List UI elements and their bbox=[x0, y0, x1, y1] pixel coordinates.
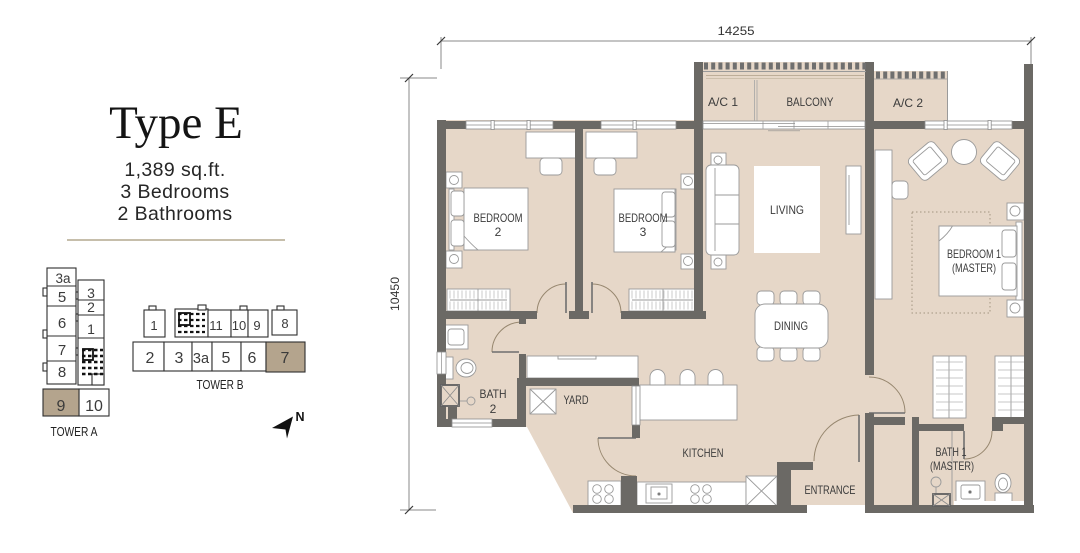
svg-text:ENTRANCE: ENTRANCE bbox=[805, 483, 856, 497]
svg-text:BEDROOM: BEDROOM bbox=[619, 211, 668, 225]
svg-text:TOWER A: TOWER A bbox=[51, 424, 98, 439]
svg-text:N: N bbox=[295, 410, 304, 424]
svg-text:6: 6 bbox=[58, 315, 66, 332]
svg-text:A/C 2: A/C 2 bbox=[893, 96, 923, 110]
svg-text:3: 3 bbox=[175, 350, 184, 367]
svg-text:KITCHEN: KITCHEN bbox=[683, 446, 724, 460]
svg-text:2: 2 bbox=[495, 225, 502, 239]
svg-text:(MASTER): (MASTER) bbox=[952, 261, 996, 275]
svg-text:8: 8 bbox=[281, 316, 288, 331]
svg-text:14255: 14255 bbox=[718, 24, 755, 38]
svg-text:7: 7 bbox=[281, 350, 290, 367]
svg-text:BATH: BATH bbox=[480, 387, 507, 401]
svg-text:10: 10 bbox=[232, 318, 246, 333]
svg-text:DINING: DINING bbox=[774, 319, 808, 333]
svg-text:2: 2 bbox=[87, 299, 95, 315]
svg-text:3a: 3a bbox=[193, 351, 210, 367]
svg-text:6: 6 bbox=[248, 350, 257, 367]
svg-text:BALCONY: BALCONY bbox=[787, 95, 834, 109]
svg-text:3: 3 bbox=[640, 225, 647, 239]
svg-text:3a: 3a bbox=[55, 271, 71, 286]
svg-text:YARD: YARD bbox=[564, 393, 589, 407]
svg-text:Type E: Type E bbox=[109, 97, 243, 149]
svg-text:9: 9 bbox=[57, 398, 66, 415]
svg-text:(MASTER): (MASTER) bbox=[930, 459, 974, 473]
svg-text:2 Bathrooms: 2 Bathrooms bbox=[118, 203, 233, 225]
svg-text:LIVING: LIVING bbox=[770, 203, 804, 217]
svg-text:1,389 sq.ft.: 1,389 sq.ft. bbox=[124, 159, 225, 181]
svg-text:5: 5 bbox=[58, 289, 66, 306]
svg-text:8: 8 bbox=[58, 364, 66, 381]
svg-text:11: 11 bbox=[209, 318, 223, 333]
svg-text:TOWER B: TOWER B bbox=[197, 377, 244, 392]
svg-text:10: 10 bbox=[85, 398, 103, 415]
svg-text:2: 2 bbox=[490, 402, 497, 416]
svg-text:9: 9 bbox=[253, 318, 260, 333]
svg-text:3 Bedrooms: 3 Bedrooms bbox=[120, 181, 229, 203]
svg-text:1: 1 bbox=[150, 318, 157, 333]
svg-text:A/C 1: A/C 1 bbox=[708, 95, 738, 109]
svg-text:BEDROOM: BEDROOM bbox=[474, 211, 523, 225]
svg-text:BATH 1: BATH 1 bbox=[936, 445, 967, 459]
svg-text:7: 7 bbox=[58, 342, 66, 359]
svg-text:2: 2 bbox=[146, 350, 155, 367]
svg-text:1: 1 bbox=[87, 321, 95, 337]
svg-text:5: 5 bbox=[222, 350, 231, 367]
svg-text:BEDROOM 1: BEDROOM 1 bbox=[947, 247, 1001, 261]
svg-text:10450: 10450 bbox=[388, 277, 402, 311]
